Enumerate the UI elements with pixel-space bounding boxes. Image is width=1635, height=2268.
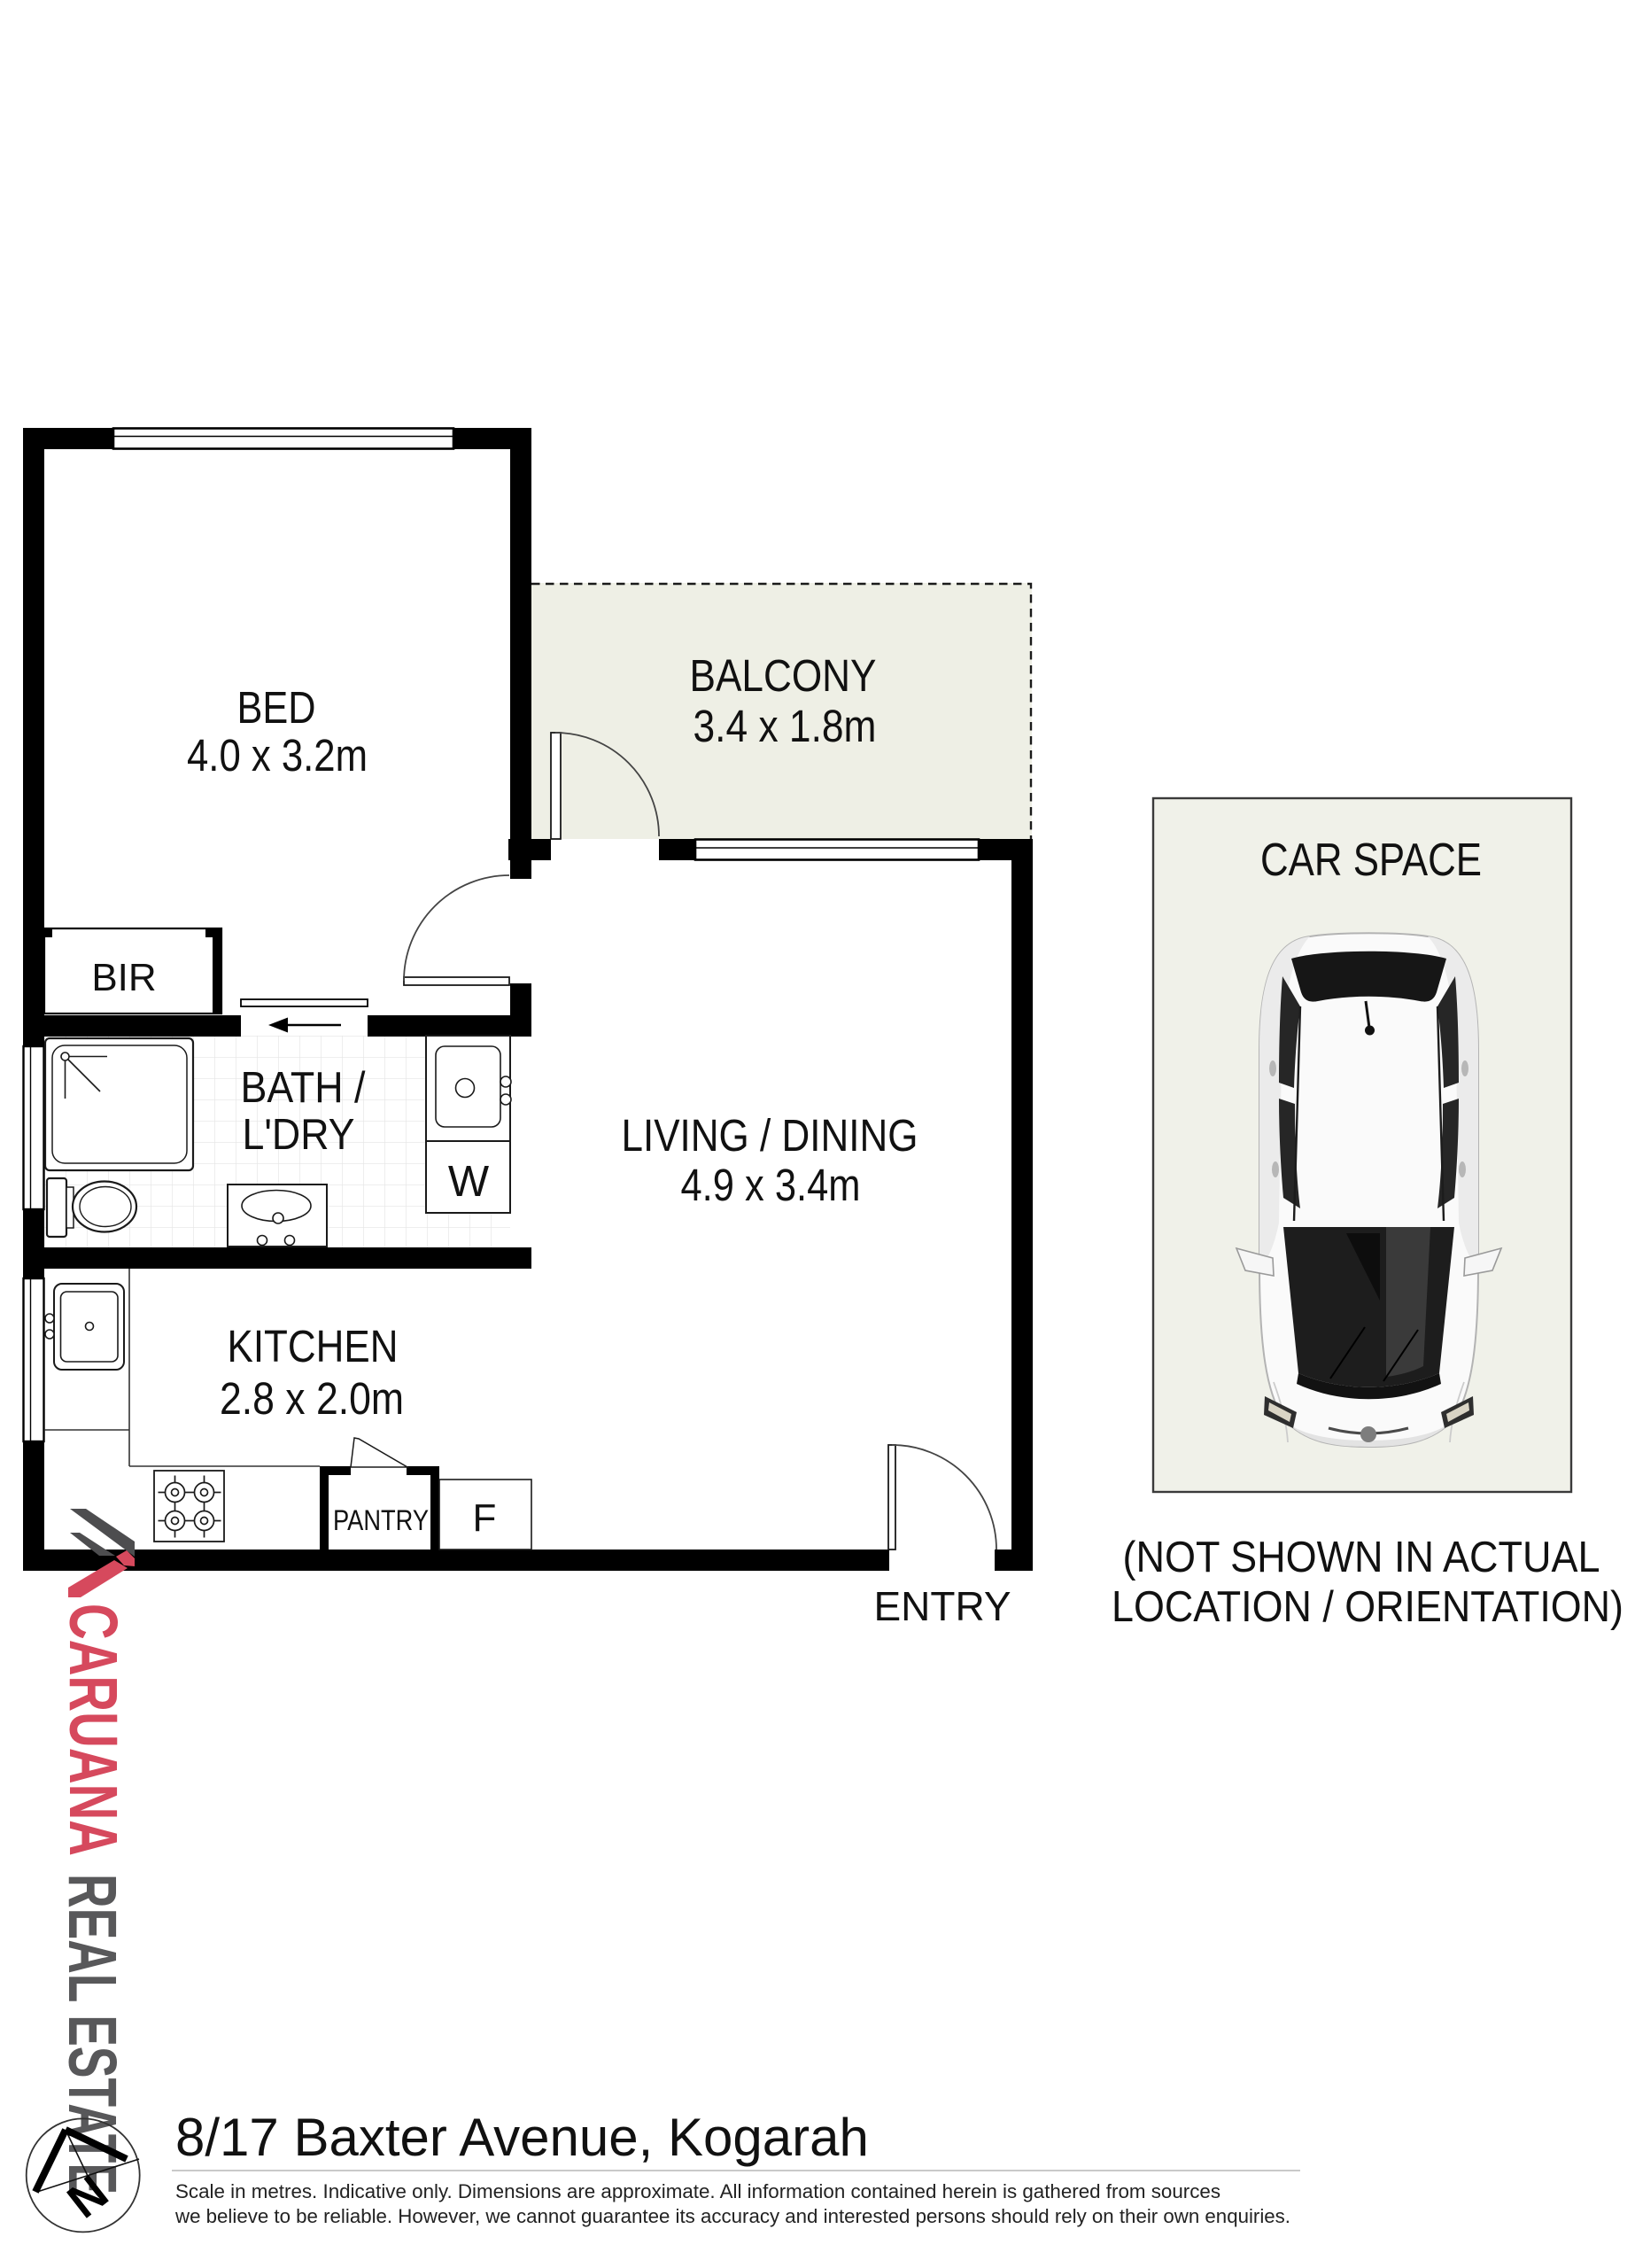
- svg-text:(NOT SHOWN IN ACTUAL: (NOT SHOWN IN ACTUAL: [1123, 1534, 1600, 1581]
- svg-text:L'DRY: L'DRY: [243, 1111, 355, 1159]
- svg-text:PANTRY: PANTRY: [333, 1504, 429, 1536]
- svg-text:KITCHEN: KITCHEN: [228, 1321, 399, 1371]
- svg-text:2.8 x 2.0m: 2.8 x 2.0m: [220, 1373, 404, 1424]
- svg-text:BALCONY: BALCONY: [690, 650, 877, 701]
- svg-text:W: W: [448, 1158, 490, 1206]
- svg-text:BED: BED: [237, 682, 316, 733]
- svg-text:3.4 x 1.8m: 3.4 x 1.8m: [694, 701, 877, 751]
- svg-text:ENTRY: ENTRY: [873, 1583, 1011, 1629]
- svg-text:4.0 x 3.2m: 4.0 x 3.2m: [187, 730, 368, 781]
- svg-text:8/17 Baxter Avenue, Kogarah: 8/17 Baxter Avenue, Kogarah: [175, 2108, 869, 2167]
- svg-text:F: F: [473, 1496, 497, 1540]
- svg-text:LIVING / DINING: LIVING / DINING: [622, 1110, 918, 1161]
- svg-text:we believe to be reliable. How: we believe to be reliable. However, we c…: [174, 2205, 1290, 2227]
- svg-text:4.9 x 3.4m: 4.9 x 3.4m: [681, 1160, 861, 1210]
- svg-text:BIR: BIR: [91, 956, 156, 999]
- svg-text:Scale in metres. Indicative on: Scale in metres. Indicative only. Dimens…: [175, 2180, 1220, 2202]
- svg-text:BATH /: BATH /: [241, 1064, 366, 1112]
- svg-text:LOCATION / ORIENTATION): LOCATION / ORIENTATION): [1112, 1583, 1623, 1631]
- svg-text:CAR SPACE: CAR SPACE: [1260, 835, 1482, 886]
- svg-text:CARUANA: CARUANA: [55, 1604, 131, 1856]
